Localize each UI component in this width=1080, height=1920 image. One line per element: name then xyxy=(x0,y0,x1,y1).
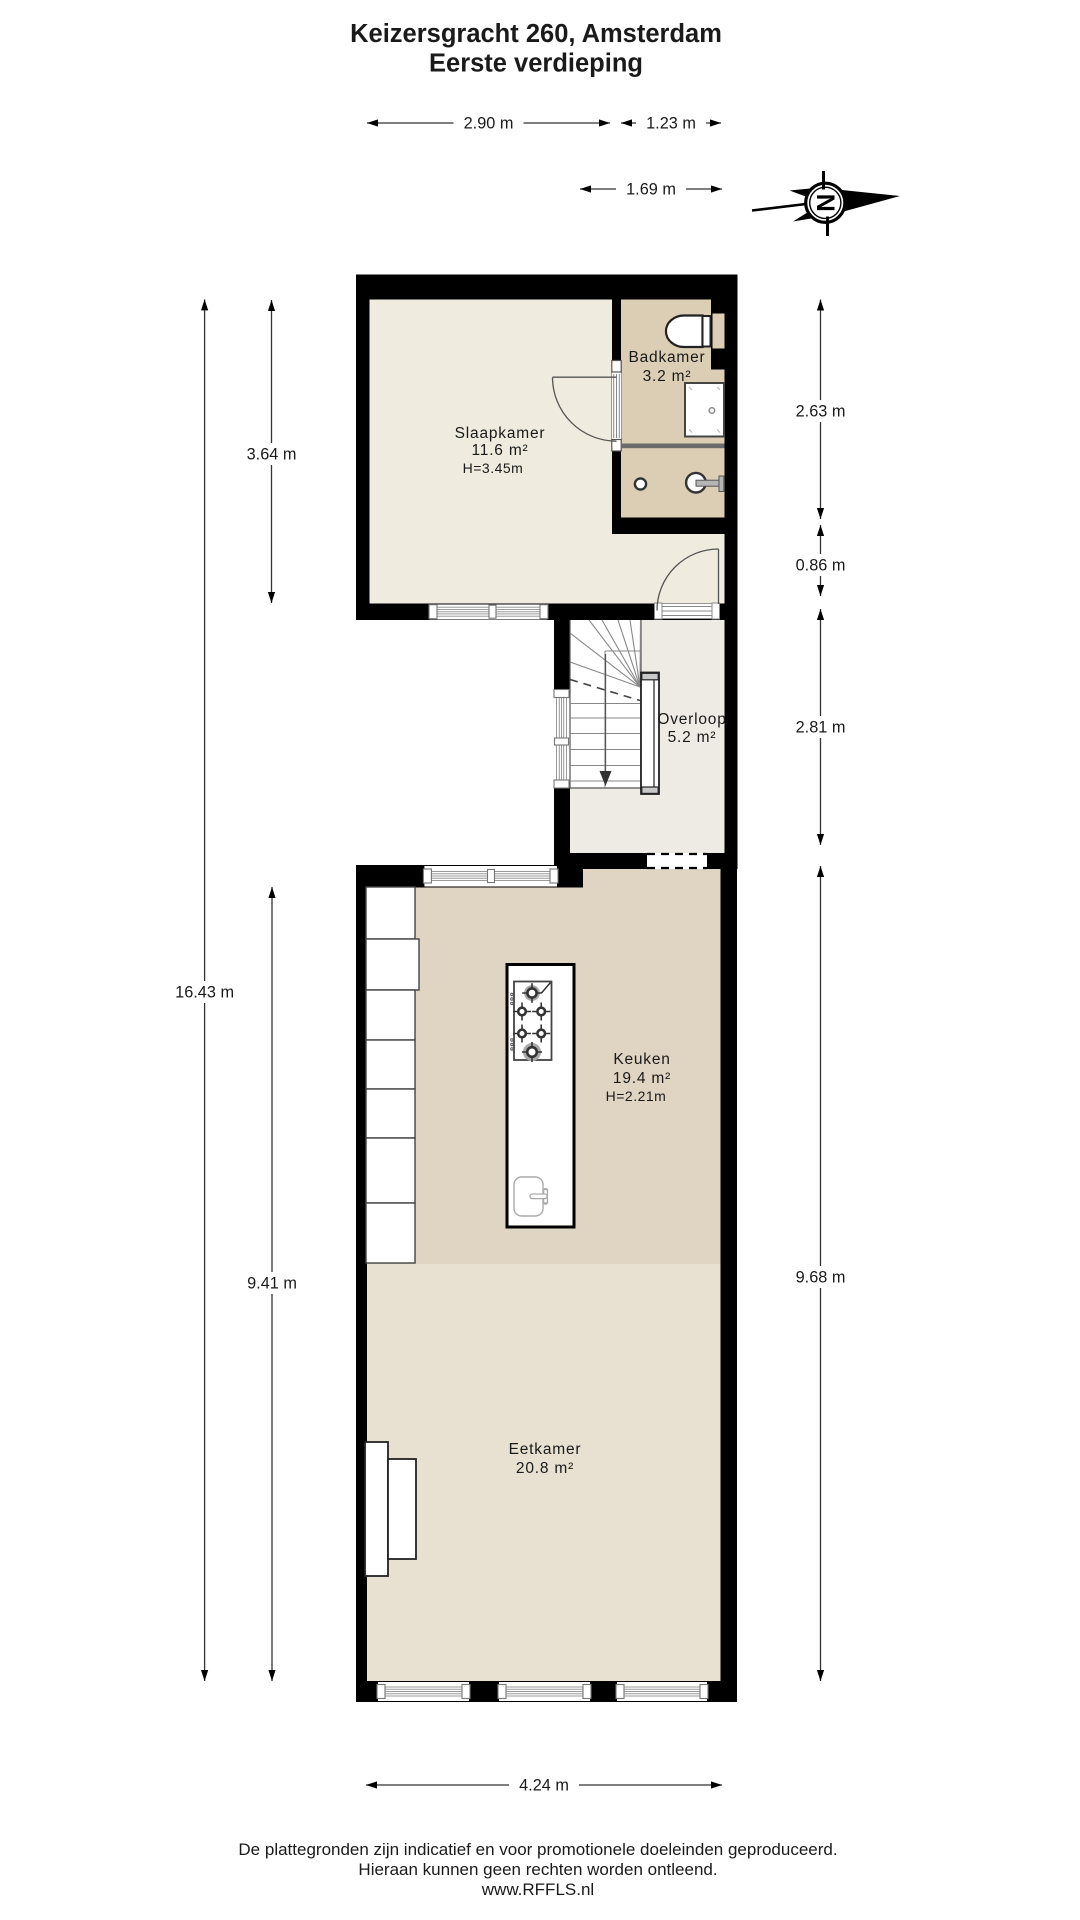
svg-text:9.68 m: 9.68 m xyxy=(796,1269,846,1287)
svg-text:N: N xyxy=(811,194,839,212)
svg-text:Keizersgracht 260, Amsterdam: Keizersgracht 260, Amsterdam xyxy=(350,20,722,48)
svg-text:Overloop: Overloop xyxy=(657,711,726,728)
svg-text:3.2 m²: 3.2 m² xyxy=(643,368,692,385)
svg-text:4.24 m: 4.24 m xyxy=(519,1777,569,1795)
svg-text:11.6 m²: 11.6 m² xyxy=(472,442,529,459)
svg-text:De plattegronden zijn indicati: De plattegronden zijn indicatief en voor… xyxy=(238,1840,837,1859)
svg-text:Keuken: Keuken xyxy=(613,1051,670,1068)
svg-text:1.69 m: 1.69 m xyxy=(626,181,676,199)
svg-text:19.4 m²: 19.4 m² xyxy=(613,1070,671,1087)
svg-text:2.63 m: 2.63 m xyxy=(796,403,846,421)
svg-text:5.2 m²: 5.2 m² xyxy=(668,729,717,746)
svg-text:Eerste verdieping: Eerste verdieping xyxy=(429,50,643,78)
svg-text:Badkamer: Badkamer xyxy=(628,349,705,366)
svg-text:2.81 m: 2.81 m xyxy=(796,719,846,737)
svg-text:Slaapkamer: Slaapkamer xyxy=(455,425,546,442)
svg-text:H=3.45m: H=3.45m xyxy=(463,460,524,476)
svg-text:3.64 m: 3.64 m xyxy=(247,446,297,464)
svg-text:Hieraan kunnen geen rechten wo: Hieraan kunnen geen rechten worden ontle… xyxy=(358,1860,717,1879)
svg-text:1.23 m: 1.23 m xyxy=(646,115,696,133)
svg-text:2.90 m: 2.90 m xyxy=(464,115,514,133)
svg-text:www.RFFLS.nl: www.RFFLS.nl xyxy=(481,1880,594,1899)
svg-text:9.41 m: 9.41 m xyxy=(247,1275,297,1293)
svg-text:H=2.21m: H=2.21m xyxy=(606,1088,667,1104)
svg-text:20.8 m²: 20.8 m² xyxy=(516,1460,574,1477)
svg-text:16.43 m: 16.43 m xyxy=(175,984,234,1002)
svg-text:0.86 m: 0.86 m xyxy=(796,557,846,575)
svg-text:Eetkamer: Eetkamer xyxy=(509,1441,582,1458)
